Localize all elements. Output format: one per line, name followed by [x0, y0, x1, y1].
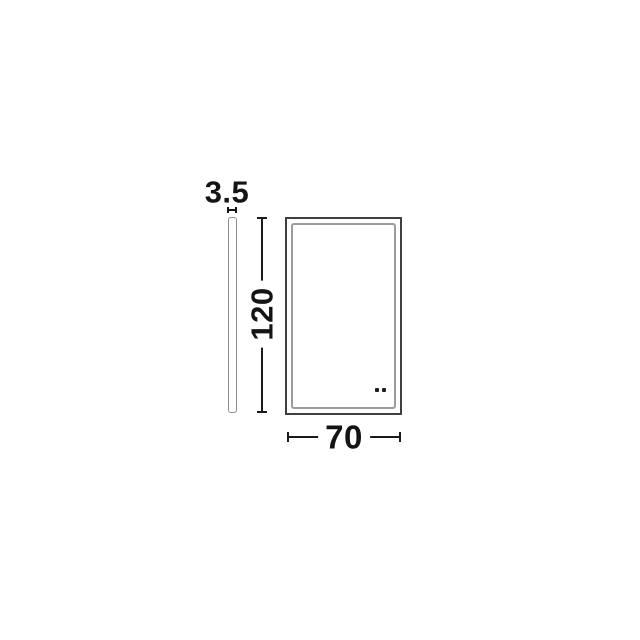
touch-sensor-dots: [375, 388, 386, 392]
width-dimension-tick-left: [287, 432, 289, 442]
width-dimension-label: 70: [318, 421, 370, 454]
height-dimension-label: 120: [247, 280, 278, 347]
height-dimension-tick-top: [257, 217, 267, 219]
mirror-front-view-outline: [285, 217, 402, 415]
width-dimension-tick-right: [399, 432, 401, 442]
touch-sensor-dot-icon: [382, 388, 386, 392]
thickness-dimension-label: 3.5: [205, 177, 250, 208]
height-dimension-tick-bottom: [257, 411, 267, 413]
touch-sensor-dot-icon: [375, 388, 379, 392]
led-inner-frame: [291, 223, 396, 409]
dimension-drawing: 3.5 120 70: [0, 0, 640, 640]
thickness-dimension-marker: [227, 207, 237, 213]
mirror-side-profile-shape: [228, 217, 237, 413]
